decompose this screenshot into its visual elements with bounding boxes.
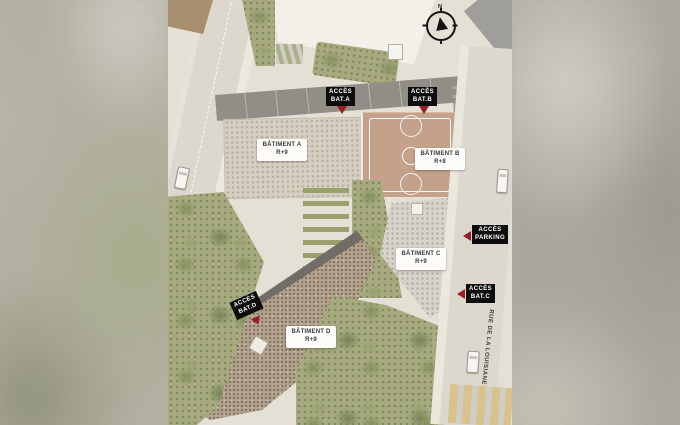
access-bat-b-tag: ACCÈS BAT.B [408,87,437,106]
compass: N [425,4,457,40]
building-a-label: BÂTIMENT A R+9 [257,139,307,161]
access-bat-b-marker-icon [419,106,429,114]
court-free-throw-bottom [400,173,422,195]
car-street-parked [496,169,509,194]
building-c-level: R+9 [398,259,444,267]
access-bat-c-tag: ACCÈS BAT.C [466,284,495,303]
access-bat-c-marker-icon [457,289,465,299]
compass-tick-s [440,39,442,44]
building-d-level: R+9 [288,337,334,345]
access-bat-b-line1: ACCÈS [411,89,434,97]
access-parking-line2: PARKING [475,235,505,243]
rooftop-unit-c [411,203,423,215]
building-b-name: BÂTIMENT B [417,151,463,159]
access-parking-line1: ACCÈS [475,227,505,235]
building-b-level: R+8 [417,159,463,167]
building-a-name: BÂTIMENT A [259,142,305,150]
access-bat-c-line2: BAT.C [469,294,492,302]
compass-tick-n [440,8,442,13]
building-b-label: BÂTIMENT B R+8 [415,148,465,170]
planted-steps [276,44,303,64]
site-plan-image: RUE DE LA LOUISIANE BÂTIMENT A R+9 BÂTIM… [0,0,680,425]
building-d-label: BÂTIMENT D R+9 [286,326,336,348]
building-c-name: BÂTIMENT C [398,251,444,259]
access-bat-a-marker-icon [337,106,347,114]
compass-tick-e [453,25,458,27]
access-bat-b-line2: BAT.B [411,97,434,105]
car-street-moving [466,351,480,374]
rooftop-unit [388,44,403,60]
compass-tick-w [423,25,428,27]
access-parking-marker-icon [463,231,471,241]
access-bat-c-line1: ACCÈS [469,286,492,294]
access-parking-tag: ACCÈS PARKING [472,225,508,244]
crosswalk [448,384,512,425]
access-bat-a-tag: ACCÈS BAT.A [326,87,355,106]
building-c-label: BÂTIMENT C R+9 [396,248,446,270]
blurred-left-fill [0,0,168,425]
court-free-throw-top [400,115,422,137]
building-d-name: BÂTIMENT D [288,329,334,337]
blurred-right-fill [512,0,680,425]
building-a-level: R+9 [259,150,305,158]
access-bat-a-line2: BAT.A [329,97,352,105]
north-arrow-icon [434,16,448,31]
site-plan: RUE DE LA LOUISIANE BÂTIMENT A R+9 BÂTIM… [168,0,512,425]
access-bat-a-line1: ACCÈS [329,89,352,97]
